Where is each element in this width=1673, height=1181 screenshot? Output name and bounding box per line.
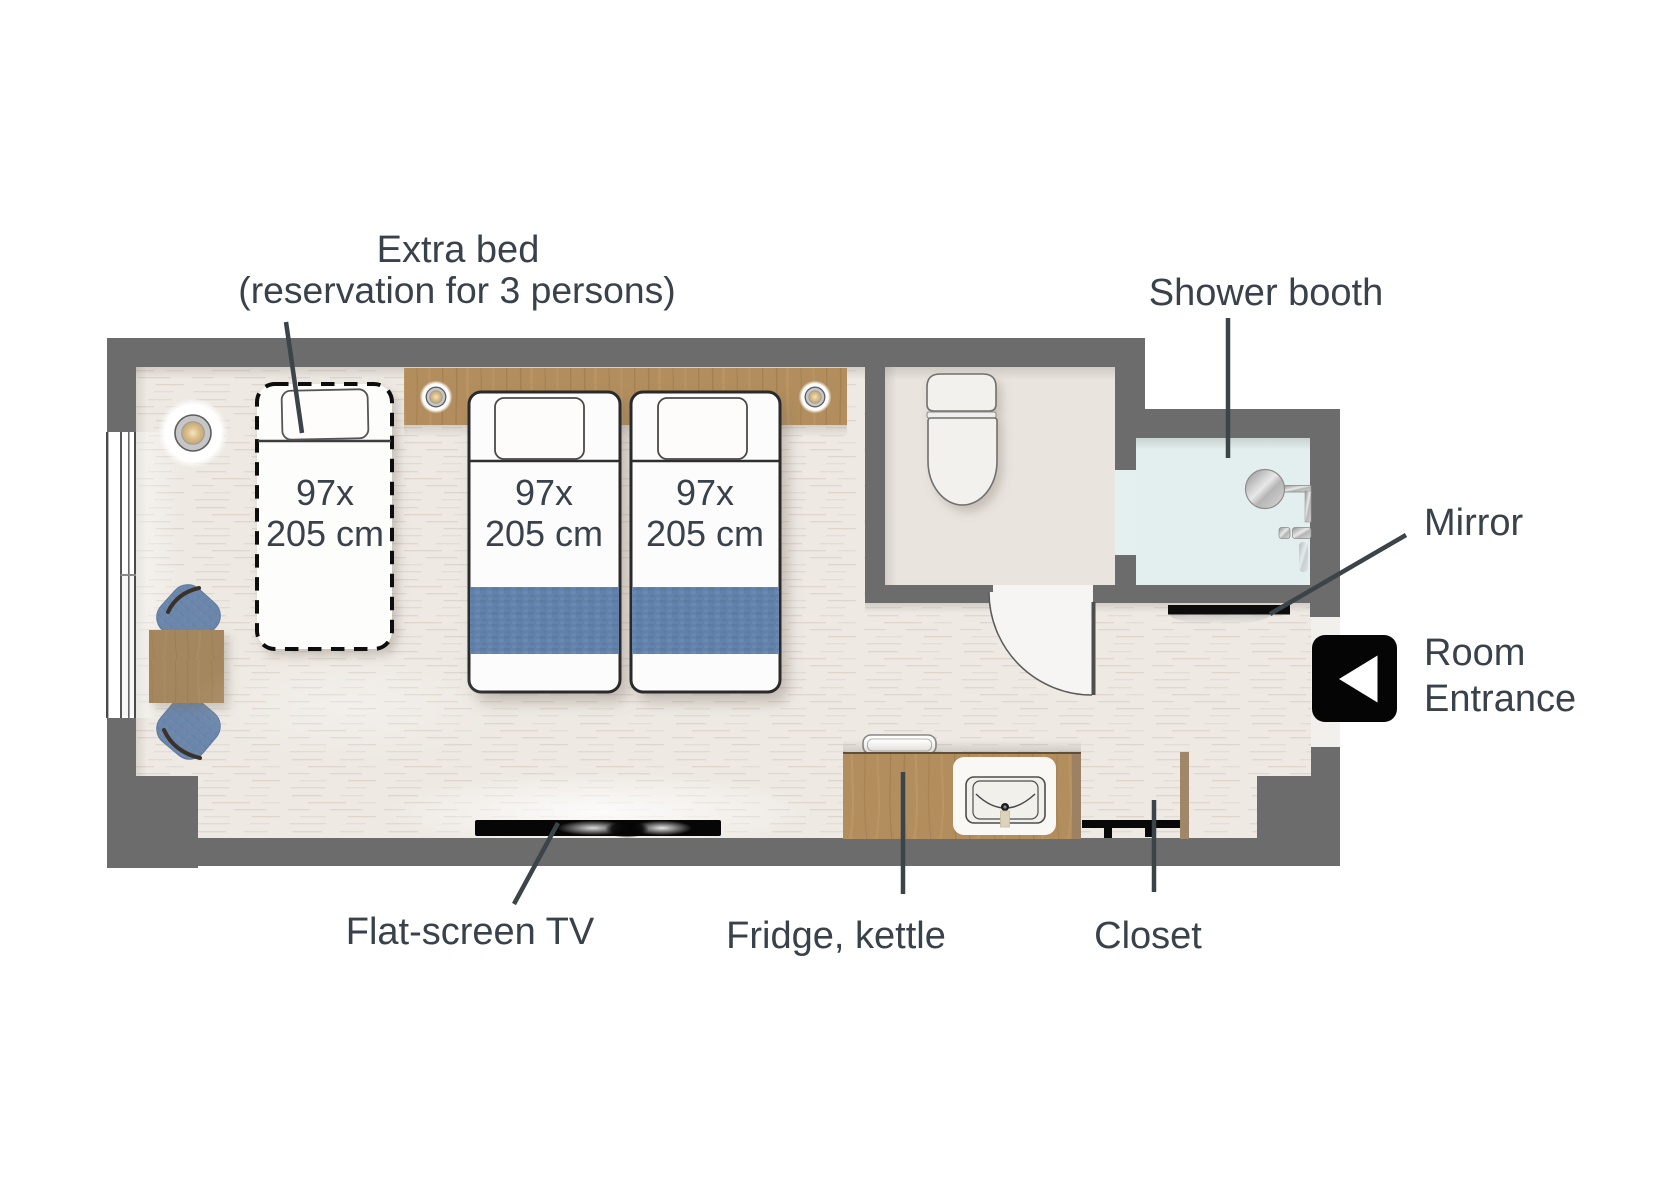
svg-text:Flat-screen TV: Flat-screen TV	[346, 911, 595, 953]
svg-text:Closet: Closet	[1094, 915, 1202, 957]
svg-text:Mirror: Mirror	[1424, 502, 1524, 544]
svg-text:Fridge, kettle: Fridge, kettle	[726, 915, 946, 957]
svg-text:Shower booth: Shower booth	[1149, 272, 1384, 314]
svg-text:205 cm: 205 cm	[266, 513, 384, 554]
svg-text:Entrance: Entrance	[1424, 678, 1576, 720]
svg-text:97x: 97x	[676, 472, 734, 513]
svg-text:205 cm: 205 cm	[485, 513, 603, 554]
svg-text:97x: 97x	[296, 472, 354, 513]
svg-text:(reservation for 3 persons): (reservation for 3 persons)	[238, 269, 675, 311]
svg-text:205 cm: 205 cm	[646, 513, 764, 554]
svg-text:Extra bed: Extra bed	[377, 229, 540, 271]
svg-text:97x: 97x	[515, 472, 573, 513]
svg-text:Room: Room	[1424, 632, 1525, 674]
